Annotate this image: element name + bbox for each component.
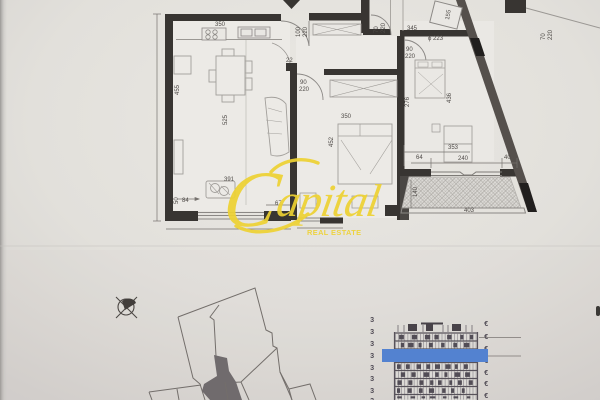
svg-text:240: 240	[458, 156, 469, 162]
svg-text:90: 90	[300, 80, 307, 86]
svg-text:350: 350	[341, 114, 352, 120]
svg-text:220: 220	[381, 22, 387, 33]
svg-text:64: 64	[416, 155, 423, 161]
svg-text:22: 22	[286, 58, 293, 64]
svg-text:353: 353	[448, 145, 459, 151]
svg-text:84: 84	[182, 198, 189, 204]
svg-text:436: 436	[447, 92, 453, 103]
svg-text:455: 455	[175, 84, 181, 95]
svg-text:345: 345	[407, 26, 418, 32]
svg-text:220: 220	[405, 54, 416, 60]
svg-text:ϕ 223: ϕ 223	[428, 36, 444, 42]
svg-text:276: 276	[405, 96, 411, 107]
svg-text:REAL ESTATE: REAL ESTATE	[307, 228, 362, 237]
svg-text:70: 70	[541, 33, 547, 40]
svg-text:100: 100	[296, 26, 302, 37]
svg-text:220: 220	[548, 29, 554, 40]
svg-text:apital: apital	[273, 176, 383, 227]
svg-text:525: 525	[223, 114, 229, 125]
svg-text:50: 50	[174, 197, 180, 204]
svg-text:40: 40	[504, 155, 511, 161]
svg-text:403: 403	[464, 208, 475, 214]
svg-text:70: 70	[374, 26, 380, 33]
svg-text:90: 90	[406, 47, 413, 53]
svg-text:140: 140	[413, 186, 419, 197]
svg-text:220: 220	[299, 87, 310, 93]
svg-text:350: 350	[215, 22, 226, 28]
svg-text:452: 452	[329, 136, 335, 147]
svg-text:220: 220	[303, 26, 309, 37]
